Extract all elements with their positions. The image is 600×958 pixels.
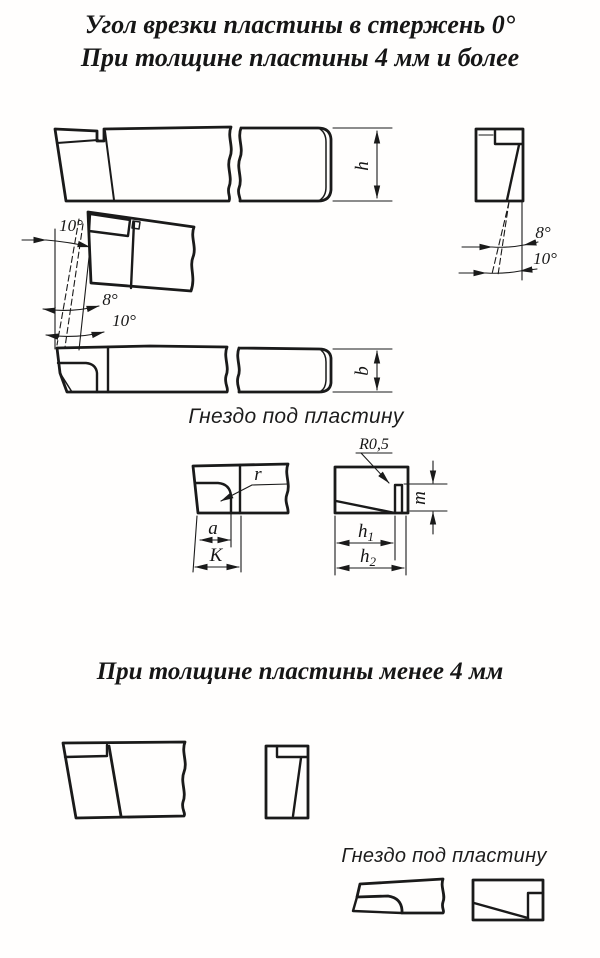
- angle-label-10: 10°: [112, 311, 136, 330]
- tool-head-outline: [57, 346, 227, 392]
- outline: [357, 879, 444, 913]
- lower-side-view: b: [57, 346, 392, 392]
- tool-head-outline: [55, 127, 231, 201]
- plate-slant-line: [293, 758, 301, 816]
- angle-label-10: 10°: [533, 249, 557, 268]
- h2-base: h: [360, 546, 370, 567]
- plan-head-outline: [88, 212, 194, 291]
- notch-lines: [528, 893, 543, 920]
- plan-divider-line: [131, 222, 134, 288]
- shank-end-chamfer-line: [321, 350, 326, 391]
- dim-label-K: K: [209, 545, 224, 566]
- upper-end-view: 8° 10°: [459, 129, 557, 280]
- dim-label-r: r: [254, 464, 262, 485]
- socket-pocket-line: [58, 363, 97, 392]
- socket-detail-front: R0,5 m h1 h2: [335, 436, 447, 575]
- plan-view: 10° 8° 10°: [22, 212, 194, 350]
- angle-10-arc: [486, 271, 520, 273]
- dim-label-h1: h1: [358, 521, 374, 544]
- angle-label-8: 8°: [535, 223, 551, 242]
- h1-base: h: [358, 521, 368, 542]
- angle-projection-dashed: [57, 219, 83, 347]
- end-view-small-plate: [266, 746, 308, 818]
- dim-label-a: a: [208, 518, 218, 539]
- h2-sub: 2: [370, 554, 377, 569]
- shank-outline: [237, 348, 331, 392]
- inclined-floor-line: [336, 501, 395, 513]
- outline: [473, 880, 543, 920]
- slot-lines: [395, 485, 402, 513]
- plan-view-small-plate: [63, 742, 185, 818]
- scanned-technical-page: Угол врезки пластины в стержень 0° При т…: [0, 0, 600, 958]
- angle-label-8: 8°: [102, 290, 118, 309]
- technical-drawing-canvas: h 8° 10° 10°: [0, 0, 600, 958]
- socket-detail-side: r a K: [193, 464, 288, 572]
- dim-label-m: m: [409, 491, 430, 505]
- plate-lines: [495, 130, 523, 200]
- plate-lines: [277, 746, 307, 757]
- outline: [63, 742, 185, 818]
- angle-8-arc: [492, 245, 524, 247]
- vertical-reference-line: [55, 229, 90, 350]
- h1-sub: 1: [368, 529, 375, 544]
- angle-label-top-10: 10°: [59, 216, 83, 235]
- dim-label-b: b: [352, 366, 373, 376]
- shank-end-chamfer-line: [320, 129, 326, 200]
- r-leader-arrow: [221, 485, 252, 501]
- socket-front-small: [473, 880, 543, 920]
- divider-slant-line: [109, 746, 121, 816]
- dim-label-R05: R0,5: [358, 436, 389, 453]
- top-angle-arc: [46, 240, 90, 247]
- outline: [335, 467, 408, 513]
- upper-side-view: h: [55, 127, 392, 201]
- end-view-outline: [476, 129, 523, 201]
- dim-label-h2: h2: [360, 546, 377, 569]
- plate-lines: [65, 745, 107, 757]
- angle-8-arrow-right: [524, 242, 538, 245]
- inclined-floor-line: [474, 903, 528, 918]
- shank-outline: [238, 128, 331, 201]
- socket-profile-small: [353, 879, 444, 913]
- dim-label-h: h: [352, 161, 373, 171]
- angle-projection-dashed: [492, 202, 509, 275]
